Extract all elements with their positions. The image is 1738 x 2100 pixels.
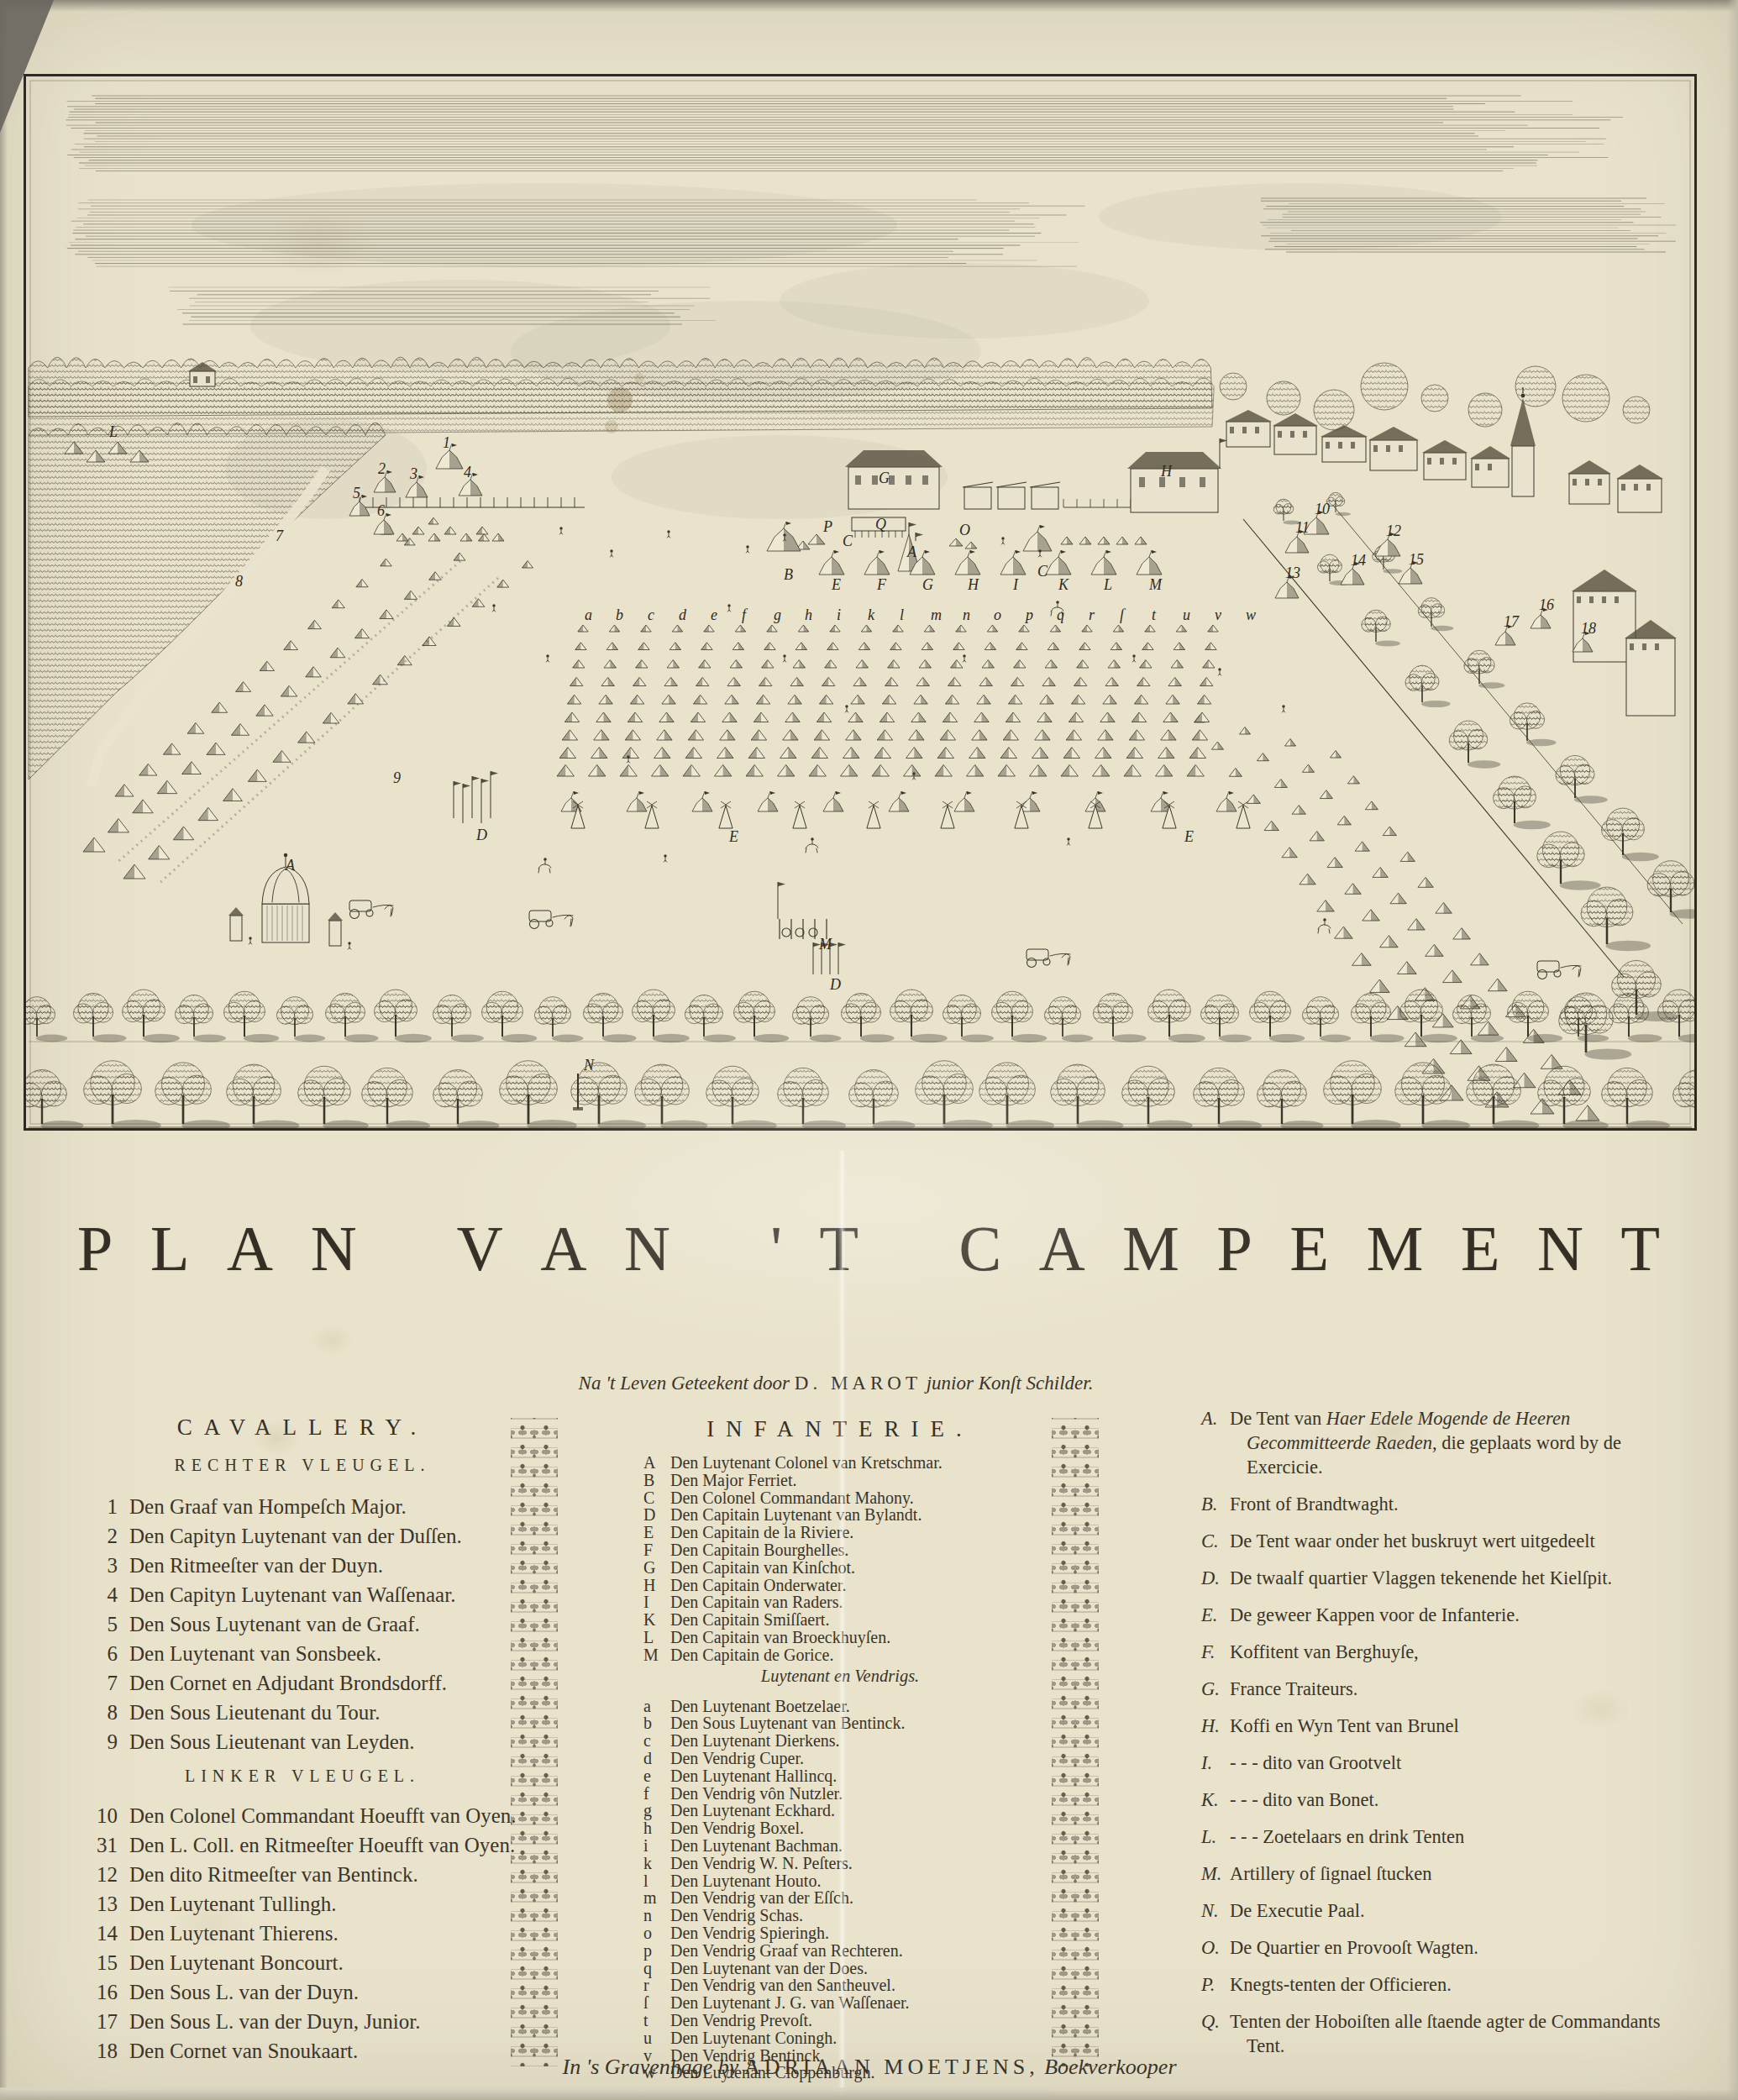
title-letter: M — [1367, 1216, 1424, 1280]
legend-entry: mDen Vendrig van der Eſſch. — [630, 1889, 1050, 1907]
plan-label: C — [1037, 563, 1048, 580]
cavallery-left-wing-list: 10Den Colonel Commandant Hoeufft van Oye… — [84, 1801, 521, 2066]
legend-column-infanterie: INFANTERIE. ADen Luytenant Colonel van K… — [630, 1416, 1050, 2082]
legend-entry: lDen Luytenant Houto. — [630, 1872, 1050, 1890]
legend-column-cavallery: CAVALLERY. RECHTER VLEUGEL. 1Den Graaf v… — [84, 1415, 521, 2066]
legend-entry: aDen Luytenant Boetzelaer. — [630, 1698, 1050, 1715]
legend-entry: DDen Capitain Luytenant van Bylandt. — [630, 1506, 1050, 1524]
legend-entry: CDen Colonel Commandant Mahony. — [630, 1489, 1050, 1507]
plan-label: k — [868, 606, 875, 623]
plan-label: 1 — [443, 434, 450, 451]
paper-edge-left — [0, 0, 8, 2100]
plan-label: B — [784, 566, 793, 583]
plan-label: 13 — [1285, 564, 1300, 581]
title-letter: P — [1217, 1216, 1252, 1280]
title-letter: E — [1461, 1216, 1499, 1280]
legend-entry: 14Den Luytenant Thierens. — [84, 1919, 521, 1948]
legend-entry: 13Den Luytenant Tullingh. — [84, 1889, 521, 1919]
plan-label: q — [1057, 606, 1064, 623]
title-letter: A — [227, 1216, 273, 1280]
site-entry: D.De twaalf quartier Vlaggen tekenende h… — [1193, 1566, 1697, 1590]
plan-label: M — [1148, 576, 1163, 593]
title-letter: N — [624, 1216, 670, 1280]
plan-label: h — [805, 606, 812, 623]
legend-entry: GDen Capitain van Kinſchot. — [630, 1559, 1050, 1577]
plan-label: G — [922, 576, 933, 593]
legend-entry: 5Den Sous Luytenant van de Graaf. — [84, 1609, 521, 1639]
legend-entry: EDen Capitain de la Riviere. — [630, 1524, 1050, 1541]
plan-label: G — [879, 470, 890, 486]
plan-label: E — [728, 828, 738, 845]
site-entry: B.Front of Brandtwaght. — [1193, 1492, 1697, 1516]
site-entry: A.De Tent van Haer Edele Mogende de Heer… — [1193, 1406, 1697, 1479]
legend-entry: HDen Capitain Onderwater. — [630, 1577, 1050, 1594]
title-letter: V — [457, 1216, 503, 1280]
plan-label: m — [931, 606, 942, 623]
legend-entry: 17Den Sous L. van der Duyn, Junior. — [84, 2007, 521, 2036]
legend-entry: oDen Vendrig Spieringh. — [630, 1924, 1050, 1942]
plan-label: C — [843, 533, 853, 549]
site-entry: Q.Tenten der Hoboiſten alle ſtaende agte… — [1193, 2009, 1697, 2058]
site-entry: G.France Traiteurs. — [1193, 1677, 1697, 1701]
title-letter: M — [1122, 1216, 1179, 1280]
legend-entry: ſDen Luytenant J. G. van Waſſenaer. — [630, 1994, 1050, 2012]
site-entry: L.- - - Zoetelaars en drink Tenten — [1193, 1824, 1697, 1849]
site-entry: N.De Executie Paal. — [1193, 1898, 1697, 1923]
legend-entry: 8Den Sous Lieutenant du Tour. — [84, 1698, 521, 1727]
plan-label: E — [831, 576, 841, 593]
plan-label: ſ — [1120, 606, 1126, 623]
site-entry: F.Koffitent van Berghuyſe, — [1193, 1640, 1697, 1664]
plan-label: A — [906, 543, 917, 560]
plan-label: a — [585, 606, 592, 623]
plan-label: 11 — [1295, 519, 1310, 536]
plan-label: 15 — [1409, 551, 1424, 568]
artist-credit-line: Na 't Leven Geteekent door D. MAROT juni… — [239, 1373, 1432, 1394]
title-letter — [394, 1216, 419, 1280]
plan-label: u — [1183, 606, 1190, 623]
legend-entry: IDen Capitain van Raders. — [630, 1593, 1050, 1611]
plan-label: I — [1012, 576, 1019, 593]
title-letter: P — [77, 1216, 113, 1280]
legend-entry: 7Den Cornet en Adjudant Brondsdorff. — [84, 1668, 521, 1698]
legend-entry: dDen Vendrig Cuper. — [630, 1750, 1050, 1767]
legend-entry: pDen Vendrig Graaf van Rechteren. — [630, 1942, 1050, 1960]
plan-label: v — [1215, 606, 1221, 623]
plan-label: d — [679, 606, 687, 623]
plan-label: e — [711, 606, 717, 623]
legend-entry: 6Den Luytenant van Sonsbeek. — [84, 1639, 521, 1668]
infantry-tent-rows-right — [1195, 716, 1600, 1121]
plan-label: 3 — [409, 465, 417, 482]
legend-entry: BDen Major Ferriet. — [630, 1472, 1050, 1489]
plan-label: 4 — [464, 464, 471, 480]
title-letter: A — [1039, 1216, 1085, 1280]
plan-label: 8 — [235, 573, 243, 590]
plan-label: g — [774, 606, 781, 623]
legend-entry: 12Den dito Ritmeeſter van Bentinck. — [84, 1860, 521, 1889]
plan-label: 18 — [1581, 620, 1596, 637]
legend-entry: fDen Vendrig vôn Nutzler. — [630, 1785, 1050, 1803]
infanterie-header: INFANTERIE. — [630, 1416, 1050, 1442]
legend-entry: KDen Capitain Smiſſaert. — [630, 1611, 1050, 1629]
forest-treeline — [29, 357, 1650, 435]
legend-entry: FDen Capitain Bourghelles. — [630, 1541, 1050, 1559]
print-title: PLAN VAN 'T CAMPEMENT — [77, 1216, 1660, 1280]
site-entry: C.De Tent waar onder het buskruyt wert u… — [1193, 1529, 1697, 1553]
legend-entry: 31Den L. Coll. en Ritmeeſter Hoeufft van… — [84, 1830, 521, 1860]
legend-entry: 9Den Sous Lieutenant van Leyden. — [84, 1727, 521, 1756]
plan-label: 9 — [393, 769, 401, 786]
legend-entry: uDen Luytenant Coningh. — [630, 2029, 1050, 2047]
legend-entry: 10Den Colonel Commandant Hoeufft van Oye… — [84, 1801, 521, 1830]
plan-label: 16 — [1539, 596, 1554, 613]
paper-edge-strip — [0, 2087, 1050, 2100]
title-letter: N — [1537, 1216, 1583, 1280]
site-entry: P.Knegts-tenten der Officieren. — [1193, 1972, 1697, 1997]
publisher-imprint: In 's Gravenhage by ADRIAAN MOETJENS, Bo… — [71, 2055, 1667, 2080]
legend-entry: 3Den Ritmeeſter van der Duyn. — [84, 1551, 521, 1580]
maliebaan-tree-rows — [24, 990, 1697, 1131]
legend-entry: 2Den Capityn Luytenant van der Duſſen. — [84, 1521, 521, 1551]
cavallery-header: CAVALLERY. — [84, 1415, 521, 1441]
plan-label: H — [967, 576, 979, 593]
plan-label: L — [108, 423, 118, 440]
plan-label: L — [1103, 576, 1112, 593]
plan-label: f — [742, 606, 748, 623]
ornamental-divider-band — [1052, 1418, 1099, 2066]
title-letter: L — [150, 1216, 189, 1280]
right-wing-subheader: RECHTER VLEUGEL. — [84, 1456, 521, 1475]
plan-label: r — [1089, 606, 1095, 623]
plan-label: 2 — [378, 460, 386, 477]
plan-label: l — [900, 606, 904, 623]
legend-entry: cDen Luytenant Dierkens. — [630, 1732, 1050, 1750]
legend-column-sites: A.De Tent van Haer Edele Mogende de Heer… — [1193, 1406, 1697, 2071]
plan-label: b — [616, 606, 623, 623]
paper-edge-right — [1727, 0, 1738, 2100]
infanterie-officers-list: ADen Luytenant Colonel van Kretschmar.BD… — [630, 1454, 1050, 1664]
engraving-camp-panorama: 123456789101112131415161718LBPCQAOGHEFGH… — [24, 74, 1697, 1131]
title-letter: C — [958, 1216, 1001, 1280]
title-letter: ' — [770, 1216, 782, 1280]
legend-entry: eDen Luytenant Hallincq. — [630, 1767, 1050, 1785]
plan-label: 14 — [1351, 552, 1366, 569]
plan-label: 5 — [353, 485, 360, 501]
site-entry: K.- - - dito van Bonet. — [1193, 1788, 1697, 1812]
legend-entry: kDen Vendrig W. N. Peſters. — [630, 1855, 1050, 1872]
luytenant-vendrigs-subheader: Luytenant en Vendrigs. — [630, 1666, 1050, 1686]
plan-label: 17 — [1504, 613, 1520, 630]
plan-label: F — [876, 576, 887, 593]
title-letter: T — [820, 1216, 858, 1280]
plan-label: D — [829, 976, 841, 993]
plan-label: w — [1246, 606, 1256, 623]
town-skyline — [1225, 387, 1697, 1060]
legend-entry: nDen Vendrig Schas. — [630, 1907, 1050, 1924]
legend-entry: MDen Capitain de Gorice. — [630, 1646, 1050, 1664]
plan-label: A — [285, 857, 296, 874]
plan-label: 12 — [1386, 522, 1401, 539]
title-letter: N — [311, 1216, 357, 1280]
plan-label: 10 — [1315, 501, 1330, 517]
site-entry: E.De geweer Kappen voor de Infanterie. — [1193, 1603, 1697, 1627]
title-letter: E — [1290, 1216, 1329, 1280]
title-letter — [708, 1216, 733, 1280]
title-letter — [896, 1216, 922, 1280]
site-entry: O.De Quartier en Provooſt Wagten. — [1193, 1935, 1697, 1960]
plan-label: P — [822, 518, 832, 535]
plan-label: p — [1024, 606, 1033, 623]
plan-label: Q — [875, 516, 886, 533]
battalion-tent-columns — [454, 625, 1250, 974]
legend-entry: bDen Sous Luytenant van Bentinck. — [630, 1714, 1050, 1732]
plan-label: i — [837, 606, 841, 623]
plan-label: n — [963, 606, 970, 623]
plan-label: O — [959, 522, 970, 538]
legend-entry: 4Den Capityn Luytenant van Waſſenaar. — [84, 1580, 521, 1609]
legend-entry: rDen Vendrig van den Santheuvel. — [630, 1977, 1050, 1994]
left-wing-subheader: LINKER VLEUGEL. — [84, 1767, 521, 1786]
plan-label: c — [648, 606, 654, 623]
title-letter: A — [540, 1216, 586, 1280]
paper-edge-bottom — [0, 2089, 1738, 2100]
legend-entry: gDen Luytenant Eckhard. — [630, 1802, 1050, 1819]
legend-entry: ADen Luytenant Colonel van Kretschmar. — [630, 1454, 1050, 1472]
title-letter: T — [1621, 1216, 1660, 1280]
plan-label: M — [818, 936, 832, 953]
legend-entry: LDen Capitain van Broeckhuyſen. — [630, 1629, 1050, 1646]
site-entry: I.- - - dito van Grootvelt — [1193, 1751, 1697, 1775]
legend-entry: 16Den Sous L. van der Duyn. — [84, 1977, 521, 2007]
infanterie-juniors-list: aDen Luytenant Boetzelaer.bDen Sous Luyt… — [630, 1698, 1050, 2082]
ornamental-divider-band — [511, 1418, 558, 2066]
cavallery-right-wing-list: 1Den Graaf van Hompeſch Major.2Den Capit… — [84, 1492, 521, 1756]
plan-label: 6 — [377, 502, 385, 519]
legend-entry: iDen Luytenant Bachman. — [630, 1837, 1050, 1855]
site-entry: H.Koffi en Wyn Tent van Brunel — [1193, 1714, 1697, 1738]
plan-label: t — [1152, 606, 1157, 623]
legend-entry: 1Den Graaf van Hompeſch Major. — [84, 1492, 521, 1521]
plan-label: 7 — [276, 528, 284, 544]
paper-edge-top — [0, 0, 1738, 12]
site-entry: M.Artillery of ſignael ſtucken — [1193, 1861, 1697, 1886]
legend-entry: hDen Vendrig Boxel. — [630, 1819, 1050, 1837]
plan-label: D — [475, 827, 487, 843]
plan-label: K — [1058, 576, 1069, 593]
legend-entry: tDen Vendrig Prevoſt. — [630, 2012, 1050, 2029]
plan-label: o — [994, 606, 1001, 623]
legend-entry: qDen Luytenant van der Does. — [630, 1960, 1050, 1977]
plan-label: N — [583, 1057, 595, 1074]
plan-label: E — [1184, 828, 1194, 845]
scanned-print-sheet: 123456789101112131415161718LBPCQAOGHEFGH… — [0, 0, 1738, 2100]
plan-label: H — [1160, 463, 1173, 480]
legend-entry: 15Den Luytenant Boncourt. — [84, 1948, 521, 1977]
